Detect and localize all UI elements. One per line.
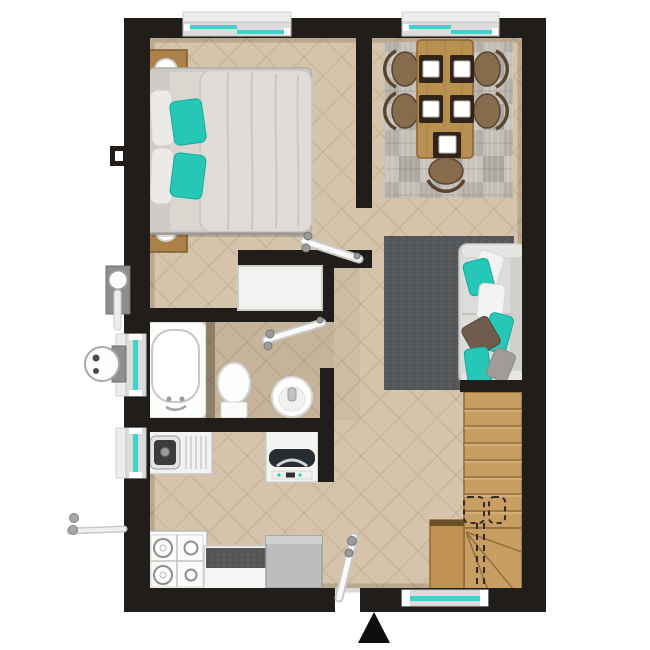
tub-handle <box>167 397 172 402</box>
sink-drain <box>161 448 170 457</box>
sofa <box>459 244 526 385</box>
burner <box>154 566 172 584</box>
place-setting <box>450 95 474 123</box>
washing-machine <box>266 430 318 482</box>
window-glass <box>237 30 287 34</box>
pipe-valve <box>69 526 78 535</box>
pipe-valve <box>70 514 79 523</box>
kitchen-window <box>116 428 146 478</box>
place-setting <box>419 95 443 123</box>
stairs-winder <box>464 528 522 590</box>
duvet <box>200 70 312 232</box>
teal-pillow <box>169 152 206 200</box>
tub-side-shadow <box>206 322 215 418</box>
gas-meter <box>85 346 126 382</box>
teal-pillow <box>169 98 207 146</box>
window-glass <box>133 338 138 392</box>
wall-bathroom-bottom <box>124 418 334 432</box>
cushion-teal <box>464 347 493 386</box>
dining-window <box>402 12 499 36</box>
window-glass <box>406 25 451 29</box>
bathtub <box>146 322 206 418</box>
entrance-arrow-icon <box>358 612 390 643</box>
floor-plan <box>0 0 650 650</box>
bedroom <box>147 50 312 252</box>
double-bed <box>149 68 312 237</box>
wall-closet-side <box>322 268 334 314</box>
wall-vent <box>110 146 128 166</box>
burner <box>154 539 172 557</box>
stairs-window <box>402 590 488 606</box>
door-hinge <box>354 253 360 259</box>
stairs-landing-block <box>430 520 464 590</box>
counter-worktop <box>206 548 266 568</box>
door-hinge <box>266 330 274 338</box>
kitchen-counter <box>204 546 268 590</box>
pedestal-sink <box>272 377 312 417</box>
hall-floor-shade <box>334 250 360 420</box>
window-glass <box>133 432 138 474</box>
entry <box>266 536 322 588</box>
gas-pipe <box>69 514 125 535</box>
landing-top-edge <box>430 520 464 526</box>
tub-handle <box>180 397 185 402</box>
door-hinge <box>302 244 310 252</box>
bed-foot-shadow <box>152 232 310 237</box>
wall-laundry-right <box>318 432 334 482</box>
window-glass <box>451 30 496 34</box>
closet-box <box>238 266 322 310</box>
burner <box>186 570 197 581</box>
white-pillow <box>150 89 175 146</box>
window-glass <box>187 25 237 29</box>
door-hinge <box>348 537 357 546</box>
gas-stove <box>147 531 207 591</box>
wall-bathroom-right <box>320 368 334 420</box>
door-hinge <box>345 549 353 557</box>
bedroom-window <box>183 12 291 36</box>
window-glass <box>406 596 484 601</box>
dining-area <box>385 40 513 198</box>
door-hinge <box>264 342 272 350</box>
cabinet-top-light <box>266 536 322 544</box>
white-pillow <box>150 148 174 205</box>
wall-bedroom-dining-divider <box>356 18 372 208</box>
place-setting <box>419 55 443 83</box>
living-area <box>384 236 526 390</box>
place-setting <box>450 55 474 83</box>
kitchen-sink-unit <box>144 430 212 474</box>
door-hinge <box>304 232 312 240</box>
wall-bottom-left <box>124 588 335 612</box>
door-hinge <box>317 317 323 323</box>
toilet <box>218 363 250 418</box>
burner <box>185 542 198 555</box>
wall-right <box>522 18 546 612</box>
wall-stair-header <box>460 380 522 392</box>
place-setting <box>433 132 461 158</box>
sink-faucet <box>288 388 296 401</box>
heater-pipe <box>114 290 121 330</box>
